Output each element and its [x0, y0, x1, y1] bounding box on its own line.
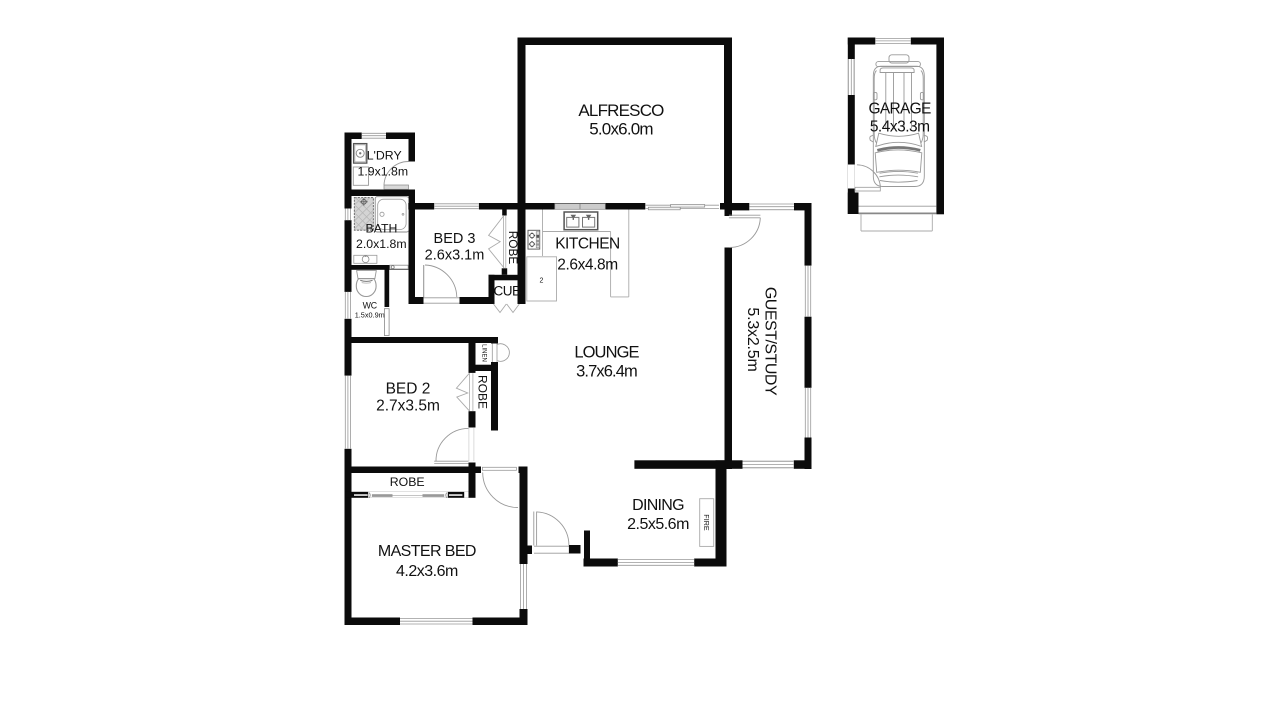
svg-text:MASTER BED: MASTER BED [378, 543, 476, 560]
svg-text:4.2x3.6m: 4.2x3.6m [396, 563, 458, 580]
svg-text:KITCHEN: KITCHEN [555, 236, 620, 253]
svg-text:5.3x2.5m: 5.3x2.5m [744, 307, 761, 371]
svg-text:DINING: DINING [632, 497, 684, 514]
svg-text:LINEN: LINEN [480, 344, 486, 362]
svg-text:L'DRY: L'DRY [367, 149, 402, 163]
svg-text:BED 3: BED 3 [434, 231, 476, 247]
svg-text:FIRE: FIRE [702, 514, 711, 531]
svg-text:2.7x3.5m: 2.7x3.5m [376, 398, 440, 415]
svg-text:2.6x3.1m: 2.6x3.1m [425, 248, 485, 264]
svg-text:1.9x1.8m: 1.9x1.8m [358, 165, 409, 179]
svg-text:ALFRESCO: ALFRESCO [578, 101, 664, 120]
svg-text:WC: WC [363, 301, 378, 311]
svg-text:GARAGE: GARAGE [869, 101, 931, 118]
svg-text:2: 2 [540, 278, 544, 285]
svg-text:LOUNGE: LOUNGE [574, 344, 639, 362]
svg-text:3.7x6.4m: 3.7x6.4m [576, 363, 637, 381]
svg-text:2.5x5.6m: 2.5x5.6m [627, 516, 689, 533]
svg-text:ROBE: ROBE [475, 375, 489, 409]
svg-text:GUEST/STUDY: GUEST/STUDY [762, 287, 779, 396]
svg-text:1.5x0.9m: 1.5x0.9m [355, 310, 385, 319]
svg-text:ROBE: ROBE [390, 475, 425, 489]
svg-text:CUB: CUB [493, 284, 520, 299]
svg-text:2.0x1.8m: 2.0x1.8m [356, 237, 407, 251]
svg-text:2.6x4.8m: 2.6x4.8m [557, 257, 618, 274]
svg-text:5.4x3.3m: 5.4x3.3m [870, 119, 930, 136]
svg-text:BED 2: BED 2 [386, 381, 431, 398]
svg-text:5.0x6.0m: 5.0x6.0m [589, 120, 653, 139]
svg-text:BATH: BATH [366, 222, 398, 236]
